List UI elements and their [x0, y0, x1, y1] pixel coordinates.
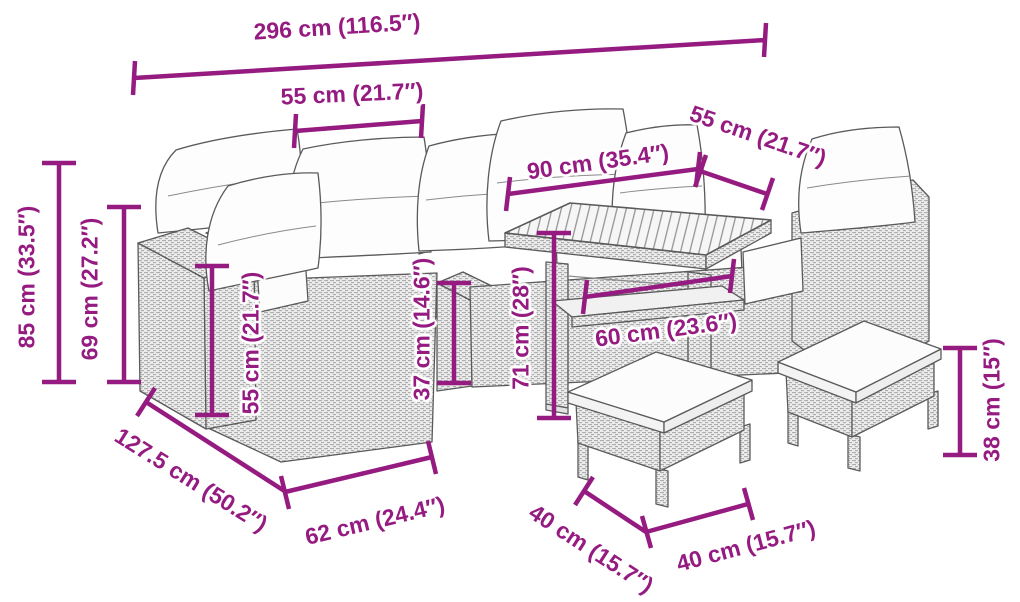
- dim-total-height: 85 cm (33.5″): [16, 206, 39, 349]
- dim-low-armrest-height: 37 cm (14.6″): [411, 258, 434, 401]
- dim-stool-height: 38 cm (15″): [981, 338, 1004, 462]
- dim-section-width: 55 cm (21.7″): [280, 79, 424, 108]
- dim-table-height: 71 cm (28″): [510, 266, 533, 390]
- dim-back-height: 69 cm (27.2″): [79, 218, 102, 361]
- dimension-diagram: 296 cm (116.5″) 55 cm (21.7″) 90 cm (35.…: [0, 0, 1020, 602]
- dim-armrest-height: 55 cm (21.7″): [240, 272, 263, 415]
